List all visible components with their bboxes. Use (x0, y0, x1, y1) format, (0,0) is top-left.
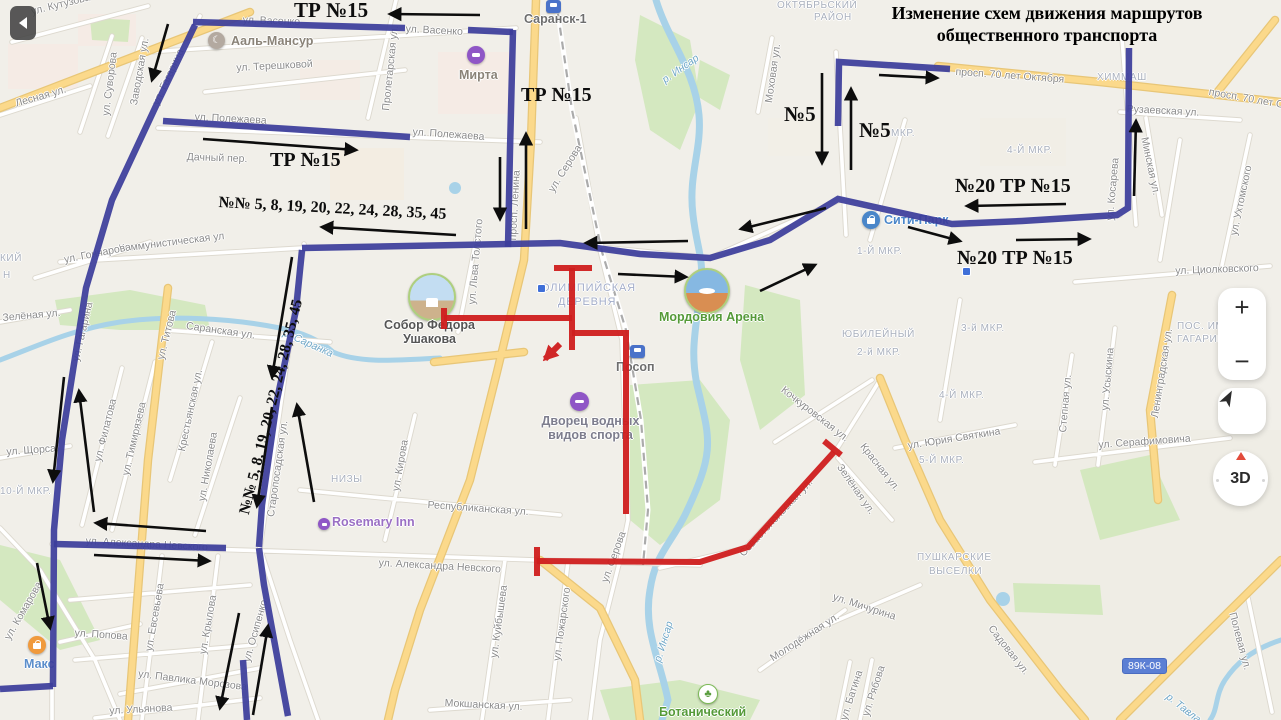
3d-label: 3D (1230, 470, 1250, 488)
detour-route-blue (0, 22, 1129, 720)
compass-north-icon (1236, 452, 1246, 460)
back-icon (19, 17, 27, 29)
route-annotation: ТР №15 (294, 0, 368, 23)
map-canvas[interactable]: ул. Кутузоваул. Васенкоул. Васенкоул. Те… (0, 0, 1281, 720)
compass-dot (1216, 479, 1219, 482)
route-annotation: №5 (859, 118, 891, 143)
road-number-badge: 89К-08 (1122, 658, 1167, 674)
route-annotation: ТР №15 (270, 149, 341, 172)
back-button[interactable] (10, 6, 36, 40)
page-title: Изменение схем движения маршрутов общест… (888, 3, 1206, 47)
zoom-out-button[interactable]: − (1218, 348, 1266, 374)
3d-view-button[interactable]: 3D (1213, 451, 1268, 506)
compass-dot (1262, 479, 1265, 482)
title-line2: общественного транспорта (888, 25, 1206, 47)
locate-icon (1218, 388, 1238, 408)
zoom-in-button[interactable]: + (1218, 294, 1266, 320)
route-annotation: №20 ТР №15 (957, 247, 1073, 270)
closed-route-red (444, 268, 841, 576)
route-annotation: ТР №15 (521, 84, 592, 107)
title-line1: Изменение схем движения маршрутов (888, 3, 1206, 25)
zoom-control[interactable]: + − (1218, 288, 1266, 380)
direction-arrows (37, 14, 1136, 715)
route-annotation: №20 ТР №15 (955, 175, 1071, 198)
route-overlay-layer (0, 0, 1281, 720)
locate-button[interactable] (1218, 388, 1266, 434)
route-annotation: №5 (784, 102, 816, 127)
